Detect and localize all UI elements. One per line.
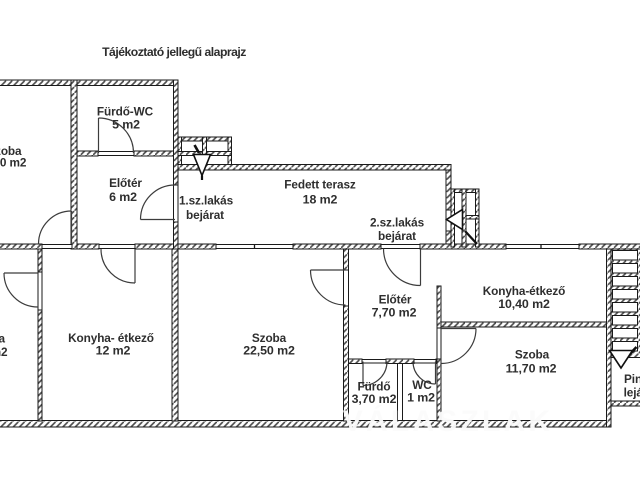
svg-text:6 m2: 6 m2 xyxy=(109,190,137,204)
svg-text:22,50 m2: 22,50 m2 xyxy=(243,344,295,358)
svg-text:12 m2: 12 m2 xyxy=(96,344,131,358)
svg-text:2.sz.lakás: 2.sz.lakás xyxy=(370,216,425,230)
svg-text:Pince: Pince xyxy=(624,372,640,386)
svg-text:18 m2: 18 m2 xyxy=(303,193,338,207)
svg-text:Tájékoztató jellegű alaprajz: Tájékoztató jellegű alaprajz xyxy=(102,45,246,59)
svg-text:lejáró: lejáró xyxy=(624,386,640,400)
svg-text:Konyha-étkező: Konyha-étkező xyxy=(483,284,566,298)
svg-text:18 m2: 18 m2 xyxy=(0,345,8,359)
svg-text:bejárat: bejárat xyxy=(186,208,224,222)
svg-text:11,70 m2: 11,70 m2 xyxy=(506,362,557,376)
svg-text:bejárat: bejárat xyxy=(378,229,416,243)
svg-text:Szoba: Szoba xyxy=(0,332,6,346)
svg-text:1.sz.lakás: 1.sz.lakás xyxy=(179,194,234,208)
svg-text:Előtér: Előtér xyxy=(379,293,412,307)
svg-text:Fedett terasz: Fedett terasz xyxy=(284,178,356,192)
svg-text:10,40 m2: 10,40 m2 xyxy=(498,297,550,311)
svg-text:5 m2: 5 m2 xyxy=(112,118,140,132)
svg-text:1 m2: 1 m2 xyxy=(407,391,435,405)
svg-text:3,70 m2: 3,70 m2 xyxy=(352,392,397,406)
svg-text:Szoba: Szoba xyxy=(515,348,550,362)
svg-text:Előtér: Előtér xyxy=(109,176,142,190)
svg-text:20 m2: 20 m2 xyxy=(0,156,27,170)
svg-text:VÁLASZLAK: VÁLASZLAK xyxy=(343,404,553,438)
svg-text:Fürdő-WC: Fürdő-WC xyxy=(97,105,154,119)
svg-text:7,70 m2: 7,70 m2 xyxy=(372,306,417,320)
